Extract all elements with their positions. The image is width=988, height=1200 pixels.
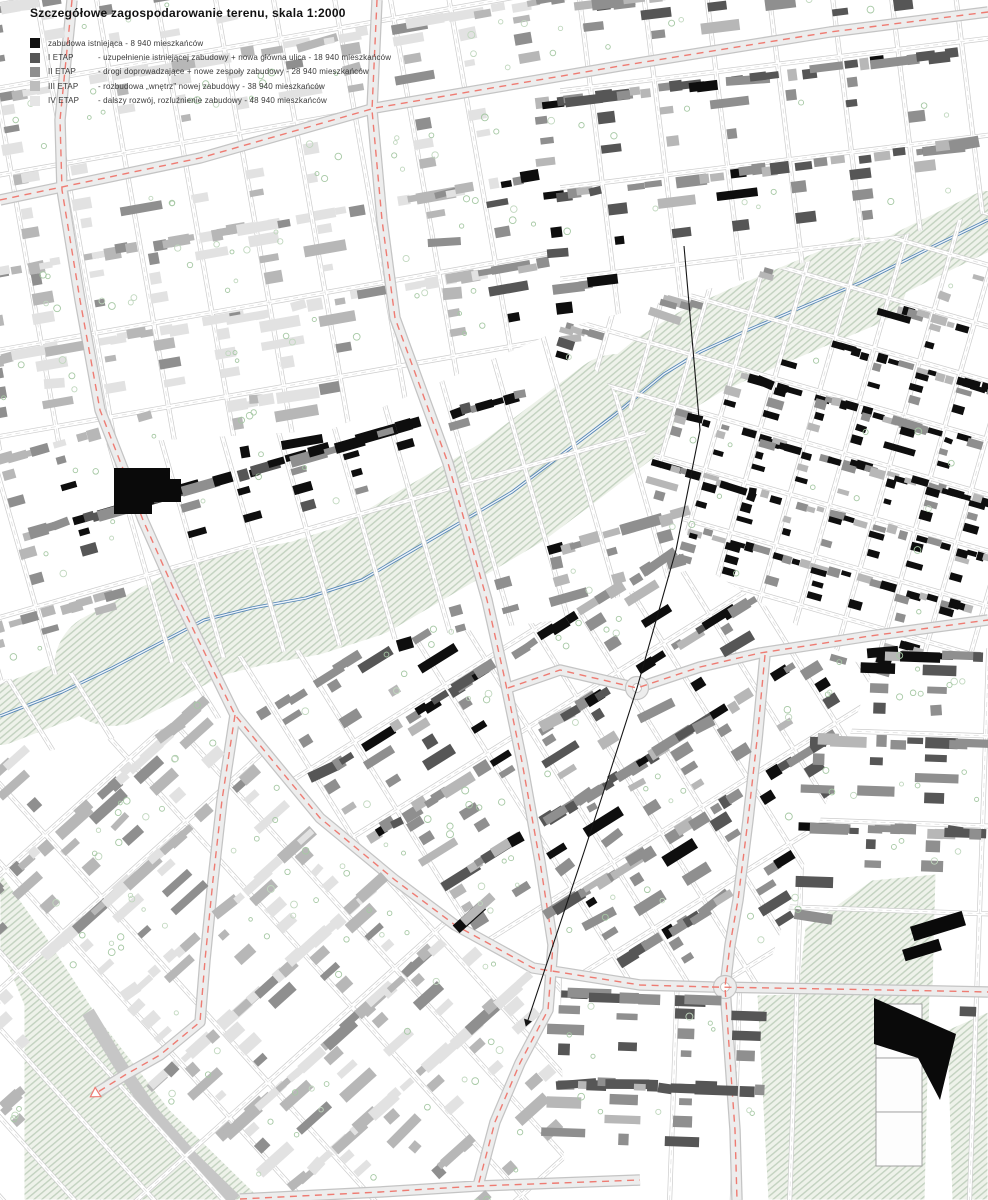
legend-color-swatch [30, 67, 40, 77]
legend-rows: zabudowa istniejąca - 8 940 mieszkańcówI… [30, 36, 391, 108]
legend-description: - rozbudowa „wnętrz" nowej zabudowy - 38… [98, 82, 325, 91]
legend-color-swatch [30, 96, 40, 106]
legend-row: IV ETAP- dalszy rozwój, rozluźnienie zab… [30, 94, 391, 108]
city-plan-map [0, 0, 988, 1200]
legend-row: I ETAP- uzupełnienie istniejącej zabudow… [30, 50, 391, 64]
legend-color-swatch [30, 38, 40, 48]
legend-color-swatch [30, 53, 40, 63]
legend-description: - uzupełnienie istniejącej zabudowy + no… [98, 53, 391, 62]
legend-description: - dalszy rozwój, rozluźnienie zabudowy -… [98, 96, 327, 105]
map-canvas: Szczegółowe zagospodarowanie terenu, ska… [0, 0, 988, 1200]
legend-phase-label: II ETAP [48, 67, 98, 76]
map-title: Szczegółowe zagospodarowanie terenu, ska… [30, 6, 391, 20]
legend-row: III ETAP- rozbudowa „wnętrz" nowej zabud… [30, 79, 391, 93]
legend-phase-label: I ETAP [48, 53, 98, 62]
legend-panel: Szczegółowe zagospodarowanie terenu, ska… [30, 6, 391, 108]
legend-phase-label: III ETAP [48, 82, 98, 91]
legend-description: - drogi doprowadzające + nowe zespoły za… [98, 67, 369, 76]
legend-phase-label: IV ETAP [48, 96, 98, 105]
legend-description: zabudowa istniejąca - 8 940 mieszkańców [48, 39, 203, 48]
legend-row: zabudowa istniejąca - 8 940 mieszkańców [30, 36, 391, 50]
legend-color-swatch [30, 81, 40, 91]
legend-row: II ETAP- drogi doprowadzające + nowe zes… [30, 65, 391, 79]
